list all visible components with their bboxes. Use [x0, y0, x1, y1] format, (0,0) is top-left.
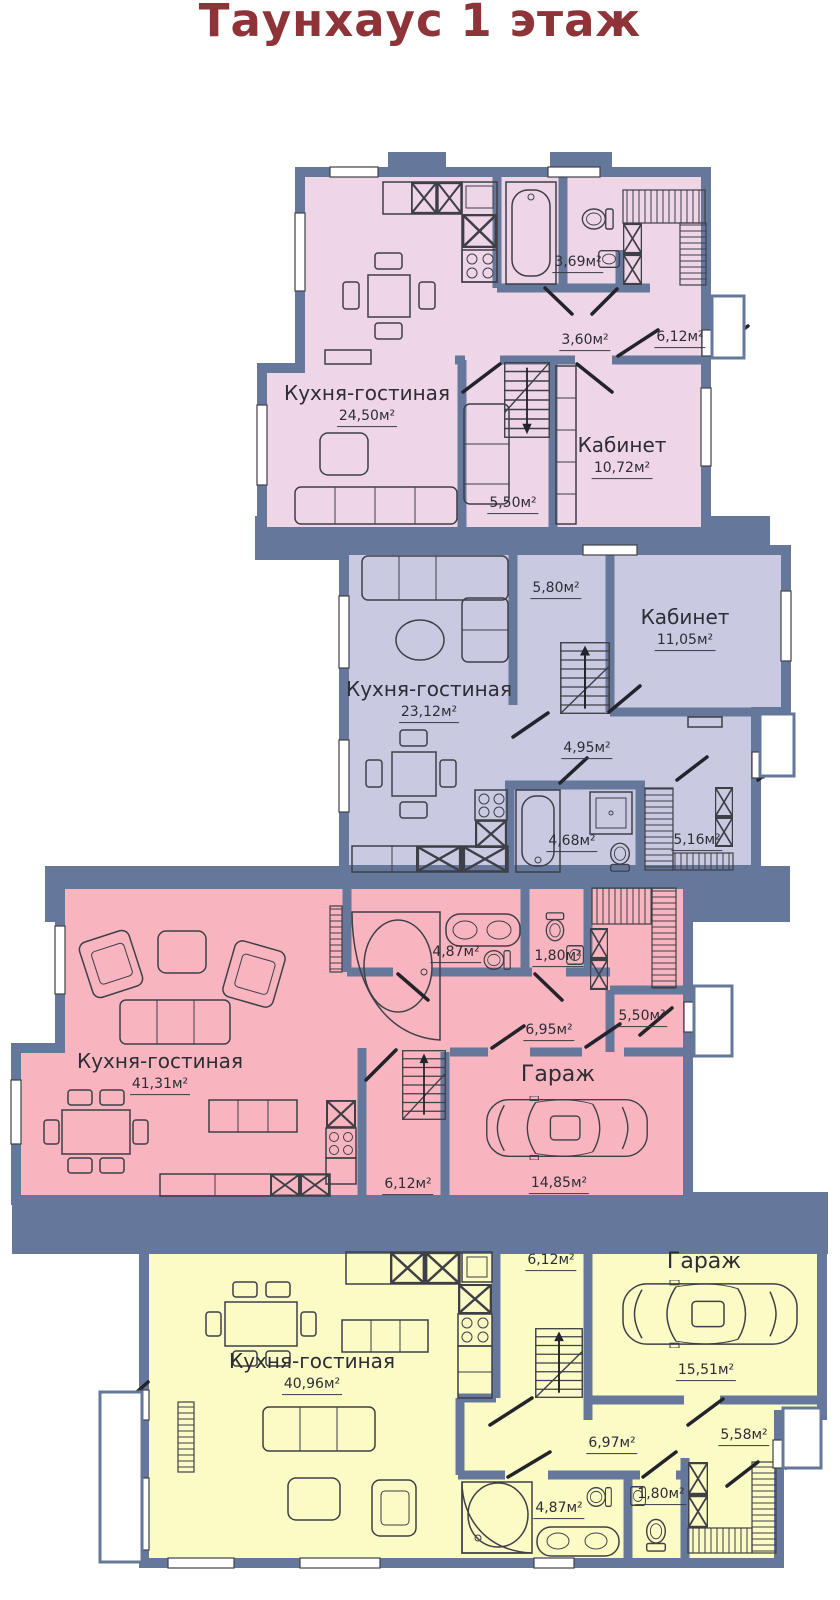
room-label-living-3: Кухня-гостиная 41,31м² — [77, 1049, 243, 1095]
room-label-entry-1: 6,12м² — [654, 326, 705, 348]
room-label-wc-1: 3,69м² — [552, 251, 603, 273]
room-label-bath-3: 4,87м² — [430, 941, 481, 963]
room-label-wc-4: 1,80м² — [635, 1483, 686, 1505]
room-label-garage-4-name: Гараж — [667, 1249, 741, 1275]
room-label-entry-4: 5,58м² — [718, 1424, 769, 1446]
radiator-icon — [330, 906, 342, 972]
unit-3 — [11, 884, 732, 1200]
room-label-hall-3: 6,95м² — [523, 1019, 574, 1041]
room-label-stairs-4: 6,12м² — [525, 1249, 576, 1271]
floor-plan-page: Таунхаус 1 этаж — [0, 0, 840, 1600]
room-label-garage-4-area: 15,51м² — [676, 1359, 736, 1381]
porch — [694, 986, 732, 1056]
room-label-living-4: Кухня-гостиная 40,96м² — [229, 1349, 395, 1395]
porch — [760, 714, 794, 776]
room-label-stairs-3: 6,12м² — [382, 1173, 433, 1195]
room-label-cabinet-2: Кабинет 11,05м² — [641, 605, 730, 651]
room-label-bath-4: 4,87м² — [533, 1497, 584, 1519]
porch — [712, 296, 744, 358]
room-label-stairs-1: 5,50м² — [487, 492, 538, 514]
unit-4-floor — [144, 1249, 822, 1563]
room-label-hall-1: 3,60м² — [559, 329, 610, 351]
room-label-entry-3: 5,50м² — [616, 1005, 667, 1027]
room-label-hall-4: 6,97м² — [586, 1432, 637, 1454]
room-label-bath-2: 4,68м² — [546, 830, 597, 852]
room-label-living-1: Кухня-гостиная 24,50м² — [284, 381, 450, 427]
room-label-garage-3-area: 14,85м² — [529, 1172, 589, 1194]
room-label-wc-3: 1,80м² — [532, 945, 583, 967]
room-label-hall-2: 4,95м² — [561, 737, 612, 759]
radiator-icon — [178, 1402, 194, 1472]
room-label-entry-2: 5,16м² — [671, 829, 722, 851]
porch — [100, 1392, 142, 1562]
unit-1 — [257, 167, 748, 532]
room-label-cabinet-1: Кабинет 10,72м² — [578, 433, 667, 479]
room-label-living-2: Кухня-гостиная 23,12м² — [346, 677, 512, 723]
room-label-garage-3-name: Гараж — [521, 1062, 595, 1088]
room-label-room-2: 5,80м² — [530, 577, 581, 599]
unit-4 — [100, 1249, 822, 1568]
porch — [783, 1408, 821, 1468]
